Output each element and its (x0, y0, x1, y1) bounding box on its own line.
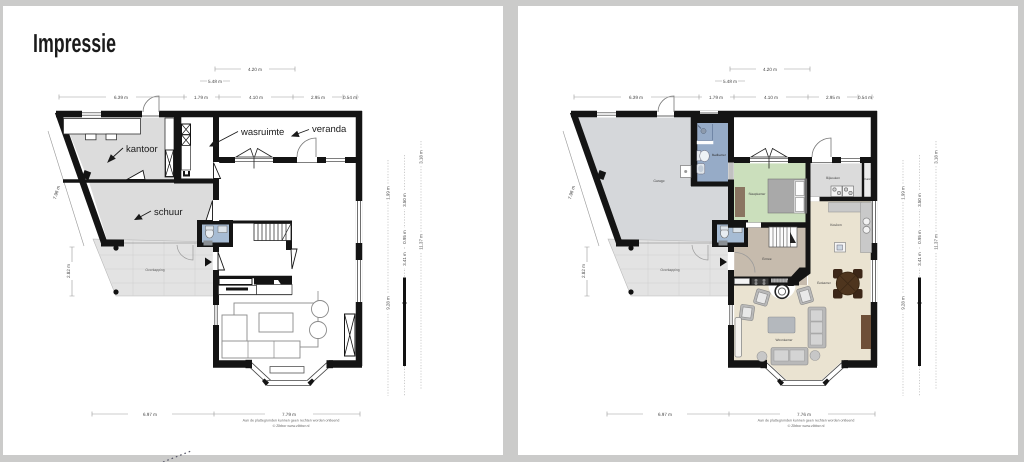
svg-text:Eetkamer: Eetkamer (817, 281, 832, 285)
svg-text:Garage: Garage (653, 179, 664, 183)
svg-text:Entree: Entree (762, 257, 772, 261)
svg-text:Keuken: Keuken (830, 223, 842, 227)
svg-text:7.76 m: 7.76 m (797, 412, 811, 417)
svg-text:Bijkeuken: Bijkeuken (826, 176, 840, 180)
svg-text:Badkamer: Badkamer (712, 153, 726, 157)
svg-text:Slaapkamer: Slaapkamer (748, 192, 766, 196)
svg-text:kantoor: kantoor (126, 144, 158, 155)
svg-text:Kast: Kast (864, 177, 870, 181)
svg-text:Impressie: Impressie (33, 28, 116, 58)
svg-text:schuur: schuur (154, 207, 183, 218)
svg-text:Woonkamer: Woonkamer (775, 338, 793, 342)
svg-text:veranda: veranda (312, 124, 347, 135)
svg-text:wasruimte: wasruimte (240, 127, 284, 138)
